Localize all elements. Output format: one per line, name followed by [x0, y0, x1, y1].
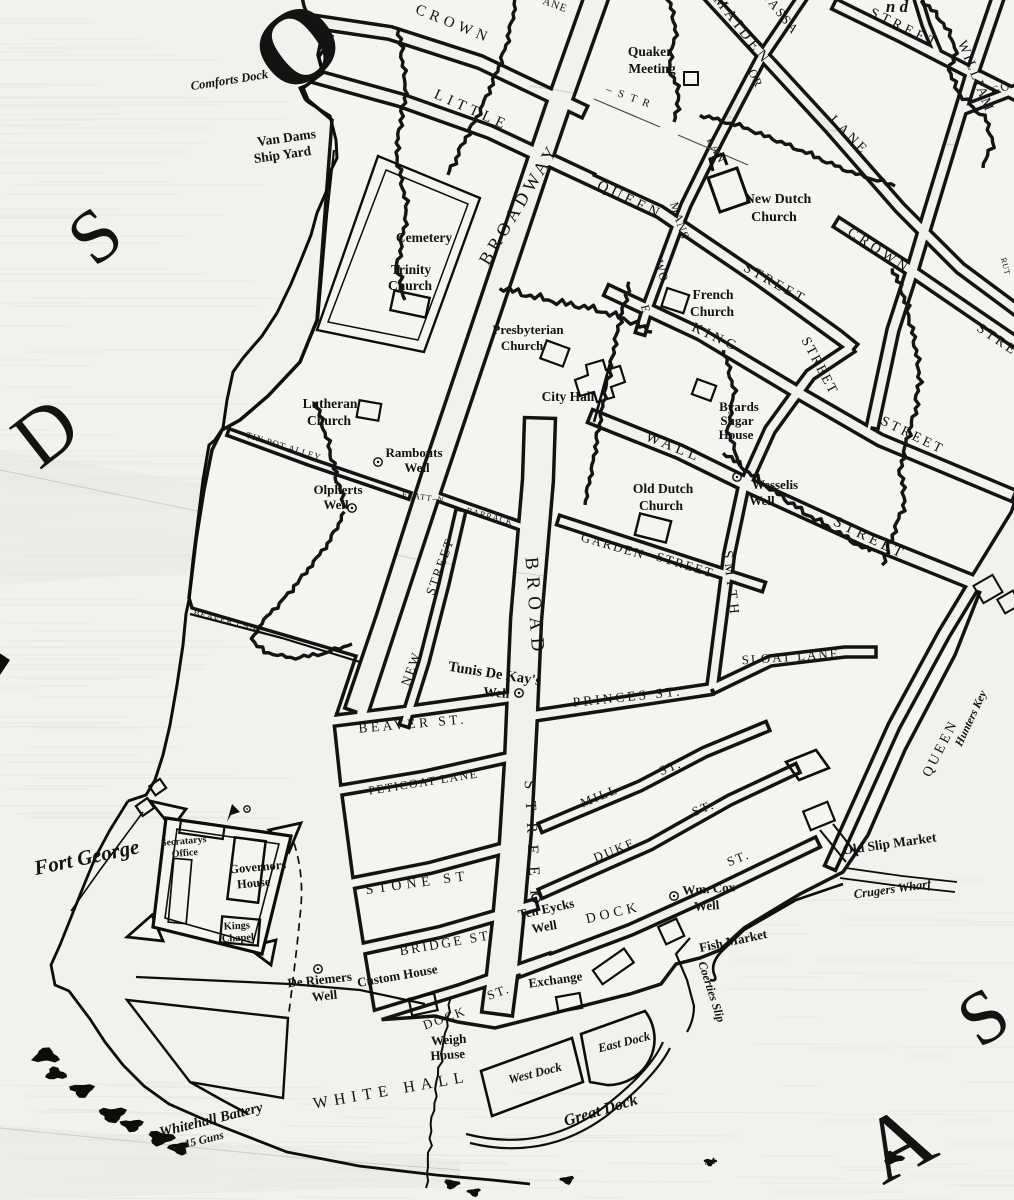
svg-text:City Hall: City Hall	[542, 389, 595, 404]
svg-text:House: House	[430, 1046, 466, 1063]
svg-text:House: House	[719, 427, 754, 442]
svg-text:Presbyterian: Presbyterian	[492, 322, 564, 337]
svg-text:Olpherts: Olpherts	[313, 482, 362, 497]
svg-text:Lutheran: Lutheran	[303, 396, 358, 411]
svg-text:Wesselis: Wesselis	[752, 477, 798, 492]
svg-text:French: French	[693, 287, 734, 302]
svg-text:Well: Well	[749, 493, 775, 508]
svg-text:Church: Church	[639, 498, 684, 513]
svg-text:Byards: Byards	[719, 399, 759, 414]
svg-text:Church: Church	[307, 413, 352, 428]
svg-text:Church: Church	[751, 210, 797, 225]
svg-text:Church: Church	[501, 338, 544, 353]
svg-text:Office: Office	[171, 847, 199, 860]
svg-text:Meeting: Meeting	[628, 61, 675, 76]
svg-text:House: House	[236, 875, 271, 892]
svg-text:Rambouts: Rambouts	[385, 445, 442, 460]
svg-text:Well: Well	[694, 897, 721, 914]
svg-text:Kings: Kings	[223, 920, 250, 932]
svg-text:Trinity: Trinity	[391, 262, 431, 277]
svg-text:Cemetery: Cemetery	[396, 230, 452, 245]
svg-text:Old Dutch: Old Dutch	[633, 481, 694, 496]
svg-text:Church: Church	[690, 304, 735, 319]
svg-text:s t: s t	[703, 1155, 716, 1168]
svg-text:Well: Well	[404, 460, 430, 475]
svg-text:New Dutch: New Dutch	[745, 192, 812, 207]
svg-text:Church: Church	[388, 278, 433, 293]
svg-text:Well: Well	[483, 684, 511, 701]
svg-text:Sugar: Sugar	[720, 413, 753, 428]
svg-text:Well: Well	[311, 987, 338, 1005]
svg-text:Well: Well	[323, 497, 349, 512]
svg-text:Quaker: Quaker	[628, 44, 672, 59]
svg-text:Chapel: Chapel	[222, 932, 255, 945]
